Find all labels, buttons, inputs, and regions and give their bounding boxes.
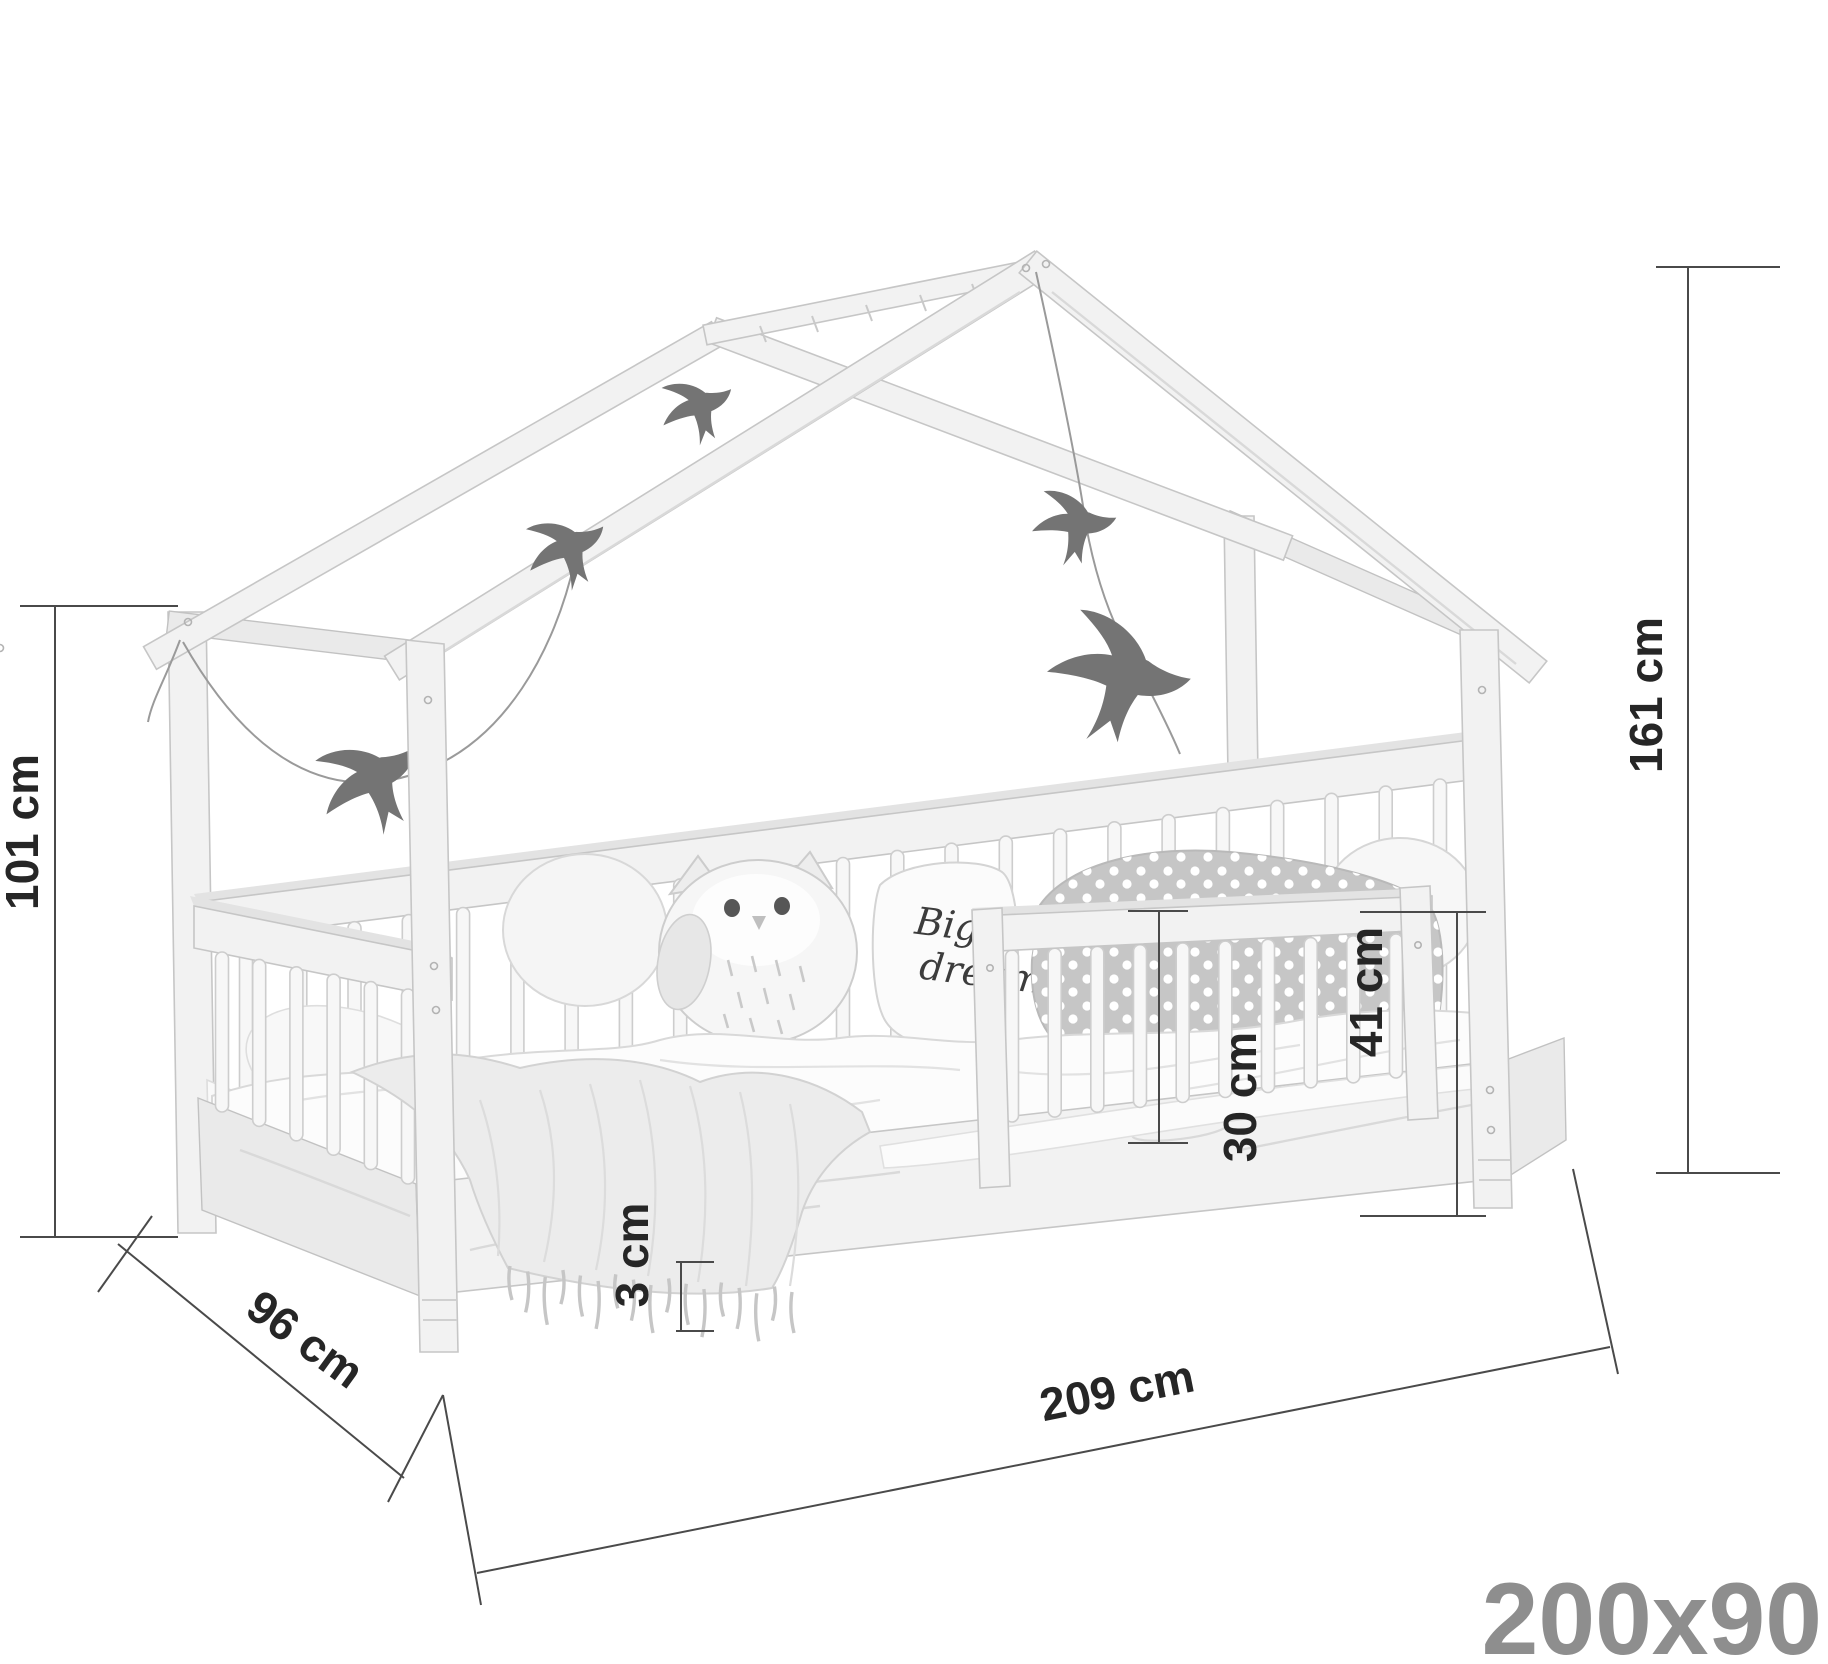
roof-rafters xyxy=(0,251,1547,683)
fringe-tassel xyxy=(596,1281,599,1329)
dimension-label-161cm: 161 cm xyxy=(1620,617,1672,773)
back-right-post xyxy=(1224,516,1258,775)
spindle xyxy=(1304,938,1317,1088)
spindle xyxy=(327,974,340,1155)
swallow-bird-icon xyxy=(1028,604,1199,769)
spindle xyxy=(290,967,303,1141)
fringe-tassel xyxy=(756,1293,759,1341)
fringe-tassel xyxy=(791,1292,794,1333)
dimension-label-96cm: 96 cm xyxy=(237,1280,373,1399)
foot-base-board xyxy=(1506,1038,1566,1178)
pillow-text-line1: Big xyxy=(912,899,982,951)
dimension-label-41cm: 41 cm xyxy=(1340,927,1392,1057)
fringe-tassel xyxy=(544,1277,547,1325)
dimension-post-height: 101 cm xyxy=(0,606,178,1237)
back-right-rafter xyxy=(707,318,1292,560)
dimension-label-30cm: 30 cm xyxy=(1214,1032,1266,1162)
swallow-bird-icon xyxy=(660,379,736,448)
dimension-label-3cm: 3 cm xyxy=(606,1203,658,1308)
swallow-bird-icon xyxy=(1026,488,1119,575)
dimension-label-209cm: 209 cm xyxy=(1035,1350,1198,1432)
dimension-total-height: 161 cm xyxy=(1620,267,1780,1173)
fringe-tassel xyxy=(702,1289,705,1337)
back-left-rafter xyxy=(144,322,725,670)
spindle xyxy=(1091,946,1104,1112)
white-pillow-left xyxy=(503,854,667,1006)
spindle xyxy=(216,952,229,1112)
house-bed-dimension-diagram: Big dreams xyxy=(0,0,1828,1664)
spindle xyxy=(1048,948,1061,1117)
size-label: 200x90 xyxy=(1482,1562,1822,1664)
diagram-svg: Big dreams xyxy=(0,0,1828,1664)
dimension-label-101cm: 101 cm xyxy=(0,754,48,910)
spindle xyxy=(253,959,266,1126)
fringe-tassel xyxy=(772,1287,775,1321)
spindle xyxy=(1176,943,1189,1103)
fringe-tassel xyxy=(737,1288,740,1329)
spindle xyxy=(1134,945,1147,1108)
